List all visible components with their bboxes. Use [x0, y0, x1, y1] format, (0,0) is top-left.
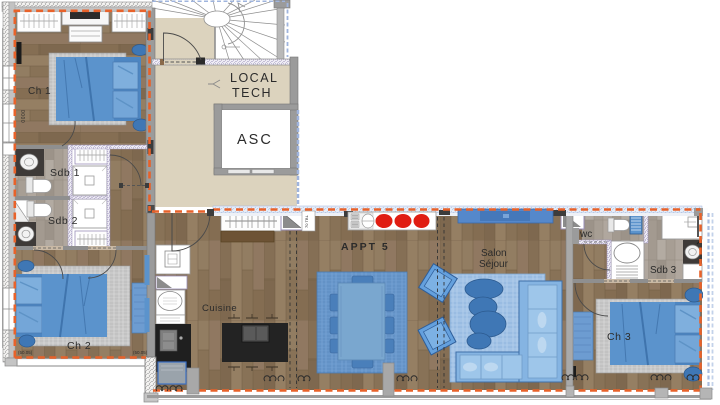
svg-text:Ch 3: Ch 3	[607, 331, 631, 343]
svg-text:wc: wc	[579, 229, 592, 240]
svg-text:(50.05): (50.05)	[18, 350, 33, 355]
svg-text:TECH: TECH	[232, 86, 272, 100]
svg-text:Ch 1: Ch 1	[28, 86, 51, 97]
svg-text:0000: 0000	[19, 110, 25, 123]
svg-text:Cuisine: Cuisine	[202, 303, 237, 314]
svg-text:Salon: Salon	[481, 248, 507, 259]
svg-text:70 TBL: 70 TBL	[304, 214, 309, 228]
svg-text:APPT 5: APPT 5	[341, 241, 390, 253]
svg-text:Sdb 3: Sdb 3	[650, 265, 677, 276]
svg-text:Sdb 2: Sdb 2	[48, 215, 78, 227]
svg-text:Sdb 1: Sdb 1	[50, 167, 80, 179]
svg-text:Ch 2: Ch 2	[67, 340, 91, 352]
svg-text:(50.05): (50.05)	[133, 350, 148, 355]
svg-text:Séjour: Séjour	[479, 259, 509, 270]
svg-text:LOCAL: LOCAL	[230, 71, 279, 85]
svg-text:ASC: ASC	[237, 132, 273, 148]
